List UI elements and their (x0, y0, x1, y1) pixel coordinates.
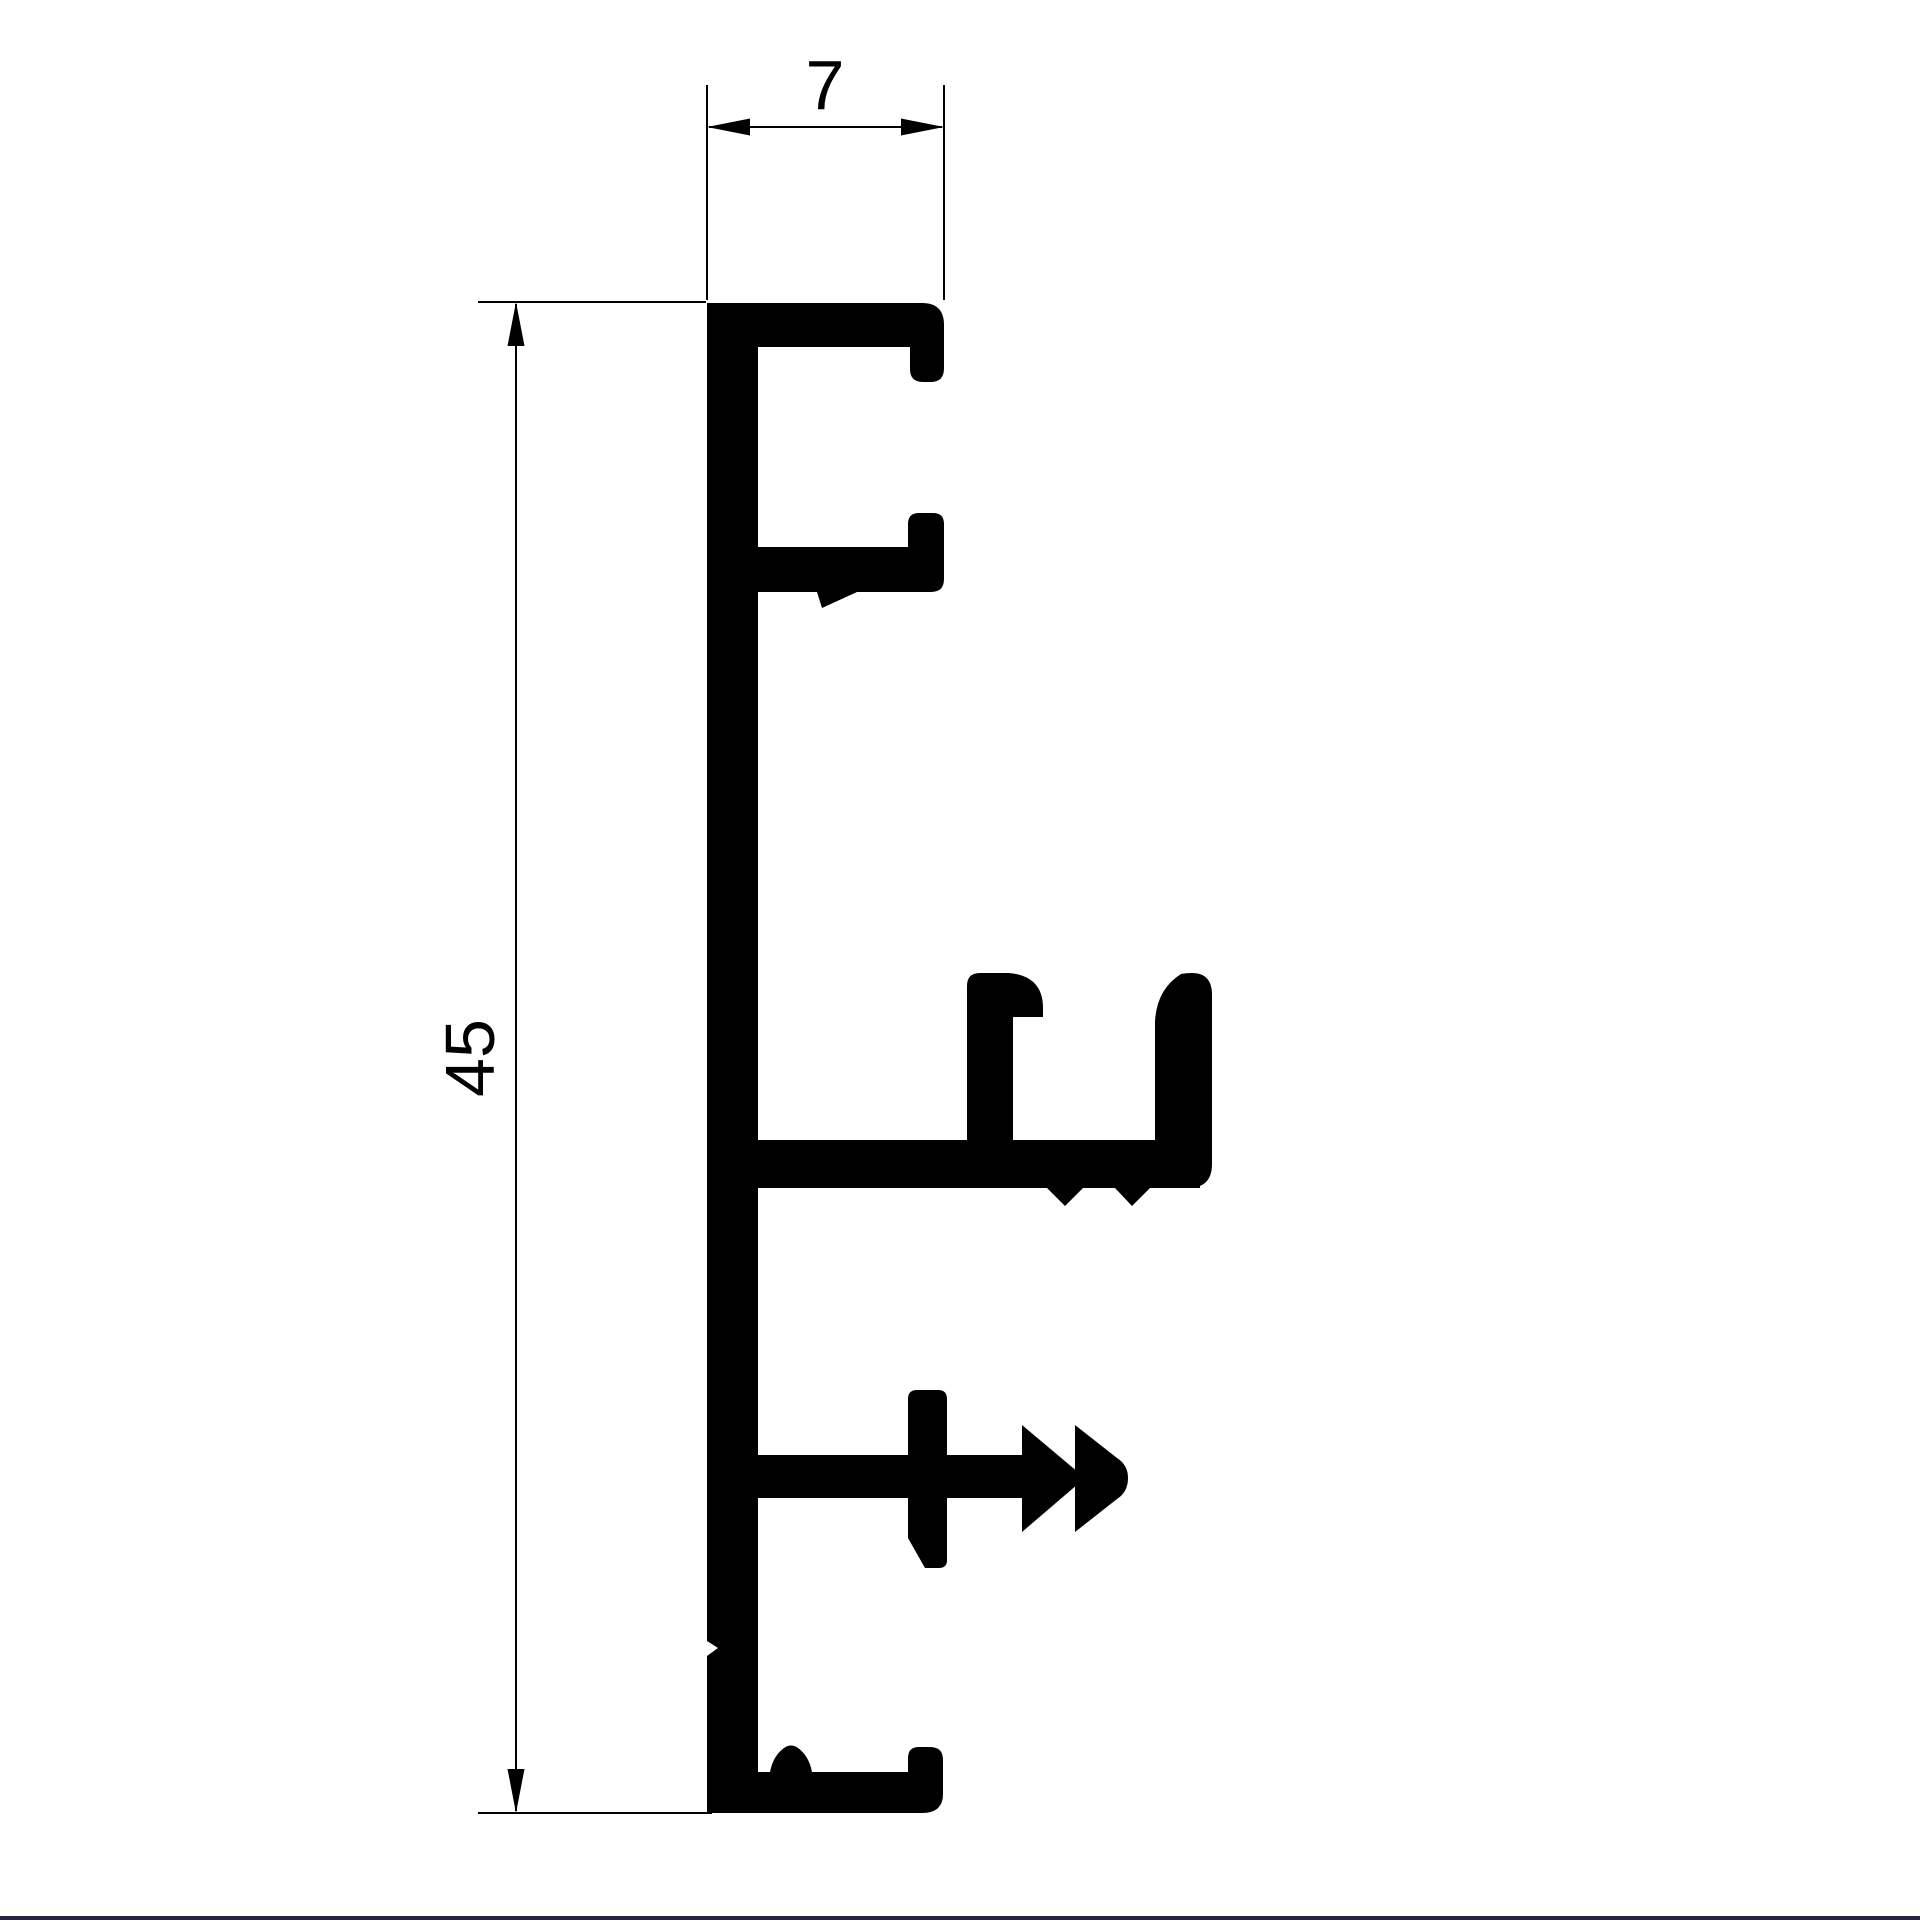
width-dimension-arrow-right (901, 119, 944, 136)
extrusion-profile-silhouette (707, 303, 1212, 1813)
profile-top-channel-lip (758, 513, 944, 608)
width-dimension-arrow-left (707, 119, 750, 136)
profile-mid-channel-barb-right (1115, 1188, 1150, 1206)
profile-barbed-leg-arm (753, 1455, 1022, 1498)
profile-mid-channel-barb-left (1047, 1188, 1083, 1206)
height-dimension-label: 45 (431, 1019, 509, 1097)
profile-foot (707, 1772, 943, 1813)
technical-drawing-page: 7 45 (0, 0, 1920, 1920)
profile-mid-channel-arm (758, 1140, 1200, 1188)
profile-foot-lip (908, 1747, 943, 1772)
extrusion-profile-drawing: 7 45 (0, 0, 1920, 1920)
profile-main-wall (707, 303, 758, 1813)
profile-barbed-leg-crossbar (908, 1390, 947, 1568)
profile-foot-bump (770, 1746, 812, 1773)
height-dimension-arrow-top (508, 302, 525, 346)
profile-barbed-leg-arrowhead-2 (1075, 1425, 1128, 1532)
width-dimension-label: 7 (806, 46, 845, 124)
height-dimension-arrow-bottom (508, 1769, 525, 1813)
profile-mid-channel-post (967, 973, 1043, 1160)
image-bottom-border (0, 1916, 1920, 1920)
